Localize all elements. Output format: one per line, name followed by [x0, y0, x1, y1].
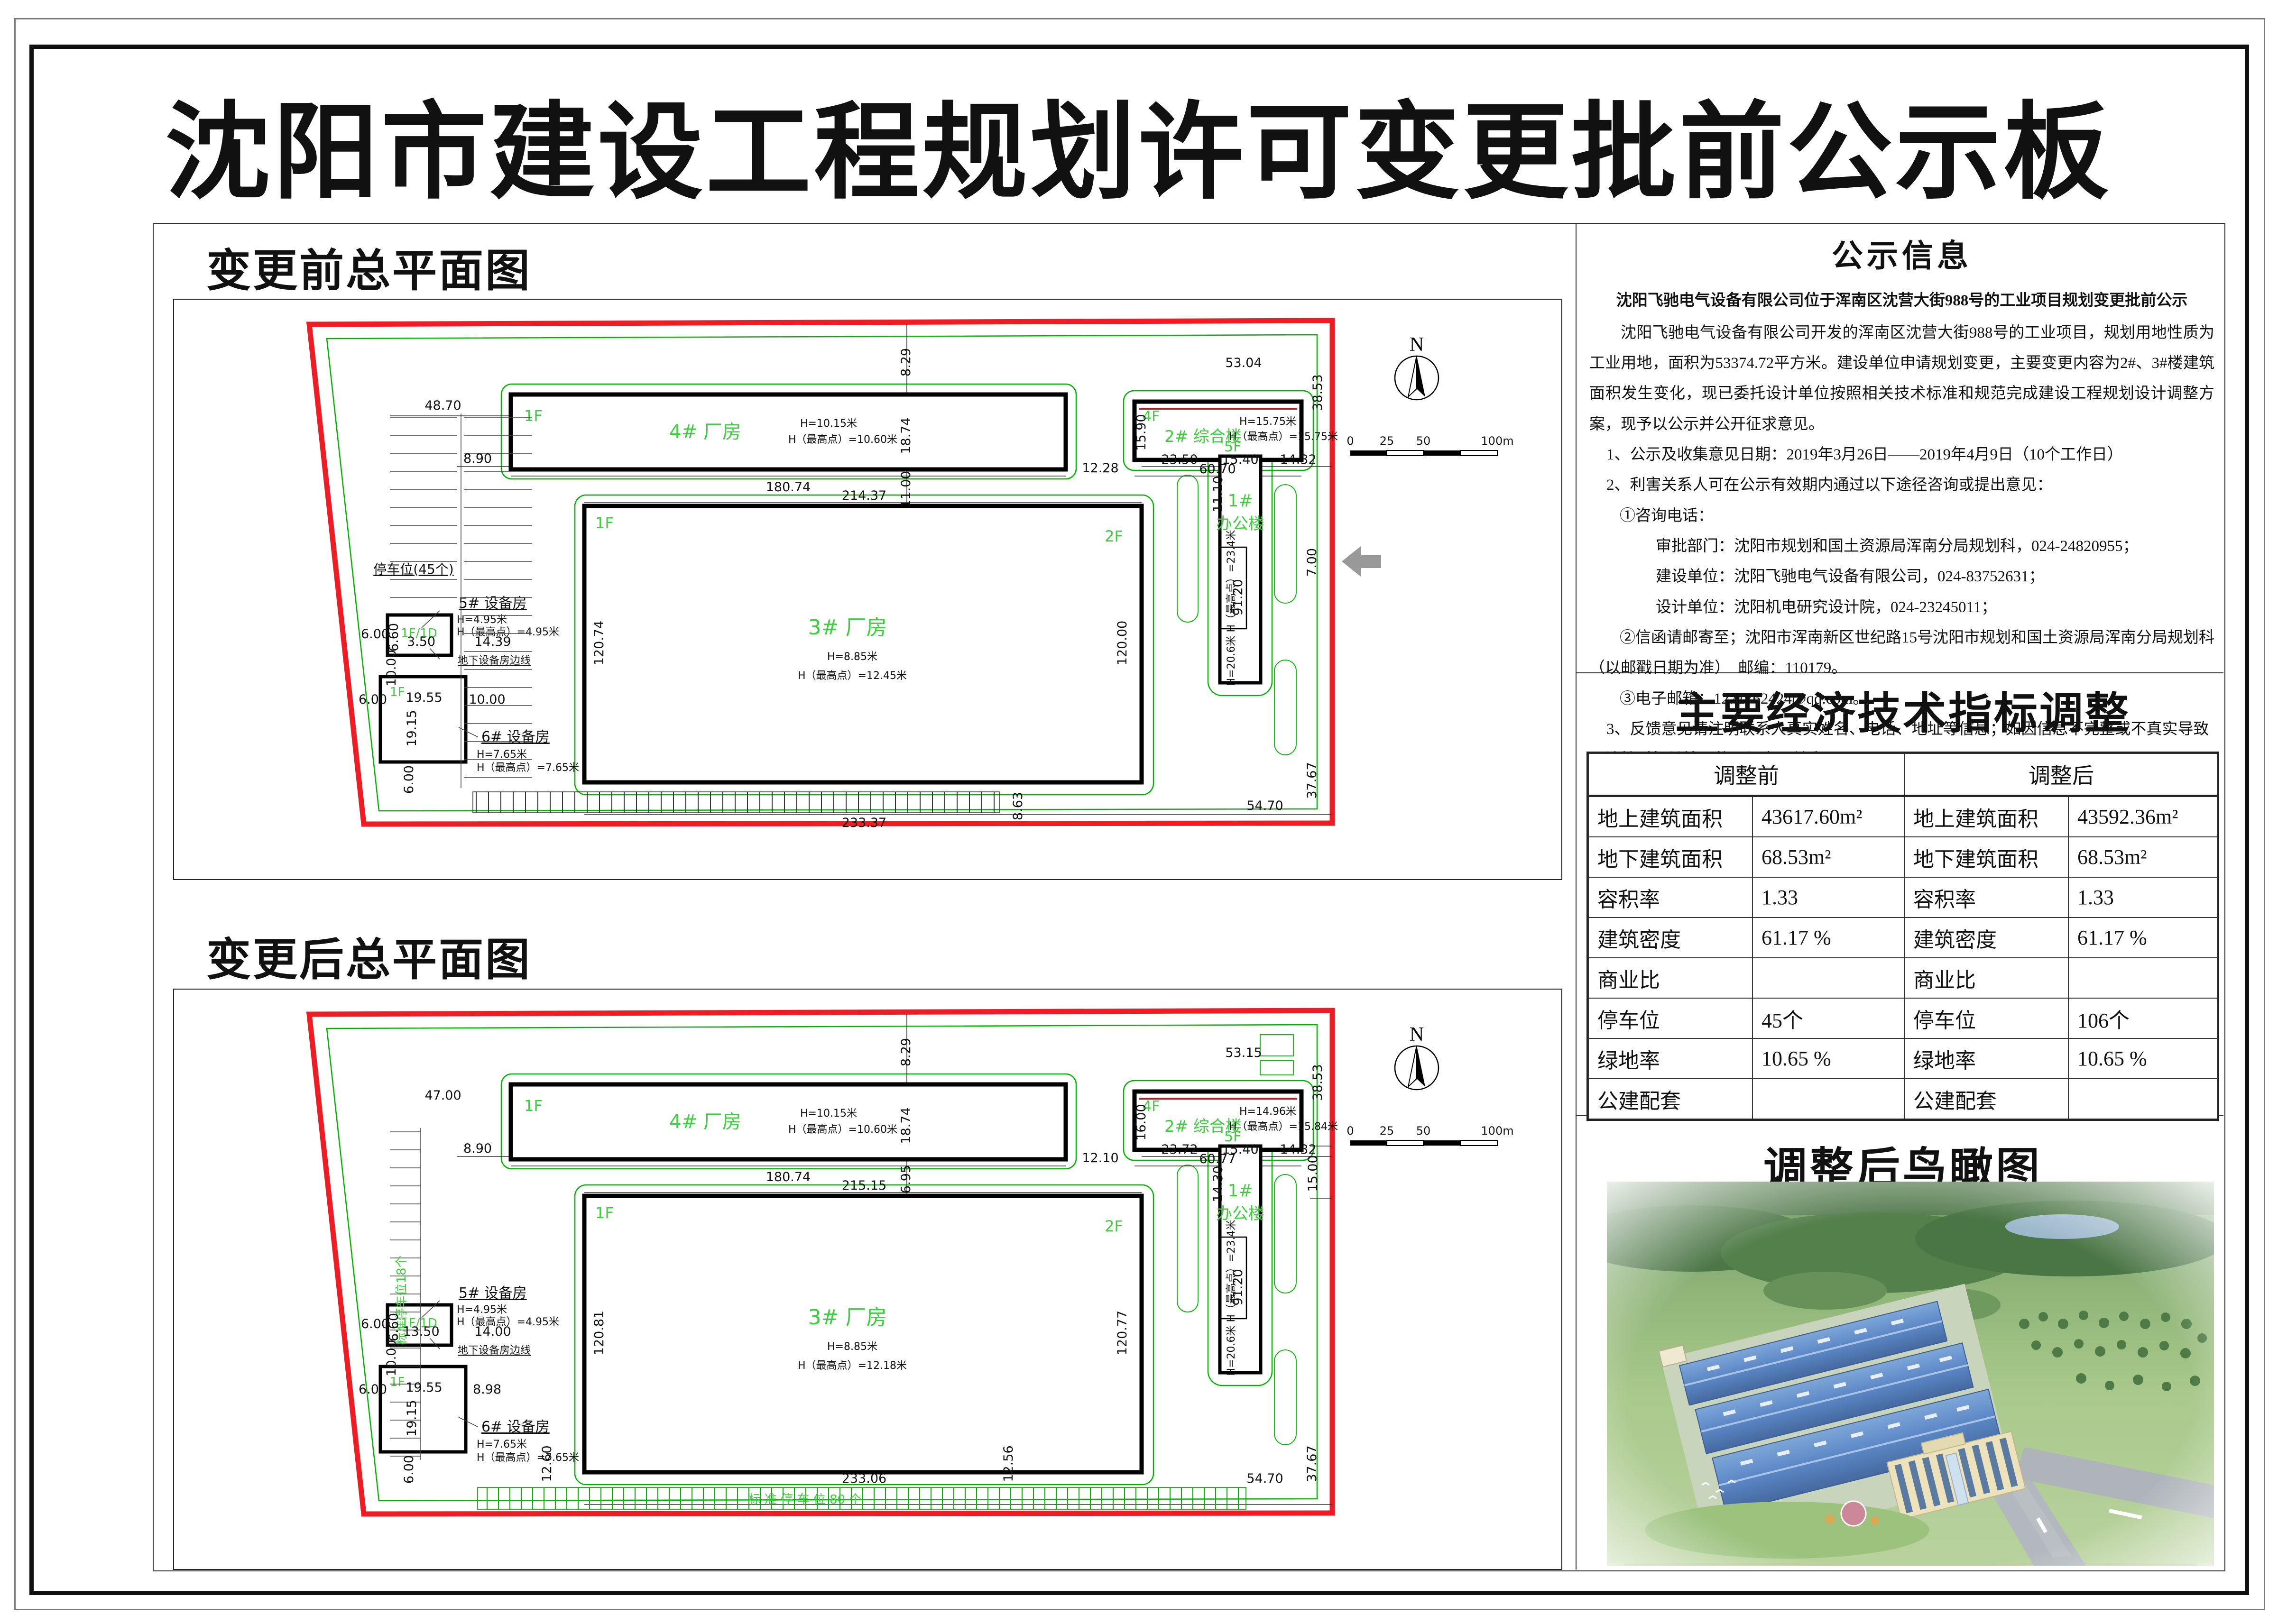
b3-floor-left: 1F	[595, 514, 614, 532]
dim: 8.98	[473, 1382, 501, 1397]
b4-height1: H=10.15米	[800, 418, 857, 430]
dim: 8.29	[899, 1038, 913, 1066]
dim: 6.00	[402, 765, 416, 794]
econ-table: 调整前 调整后 地上建筑面积 43617.60m² 地上建筑面积 43592.3…	[1586, 752, 2219, 1121]
boundary-wall-hatch	[473, 792, 999, 813]
dim: 12.60	[540, 1445, 554, 1482]
dim: 14.32	[1280, 1142, 1316, 1157]
birdseye-svg	[1607, 1182, 2214, 1566]
dim: 6.00	[359, 1382, 387, 1397]
notice-heading: 沈阳飞驰电气设备有限公司位于浑南区沈营大街988号的工业项目规划变更批前公示	[1586, 289, 2217, 313]
scale-25: 25	[1380, 434, 1394, 448]
dim: 8.29	[899, 348, 913, 376]
dim: 14.30	[1211, 1165, 1226, 1202]
econ-cell-label: 地下建筑面积	[1588, 837, 1752, 877]
b3-height1: H=8.85米	[827, 1341, 877, 1353]
dim: 180.74	[766, 480, 811, 495]
dim: 10.00	[384, 650, 399, 686]
b2-height1: H=14.96米	[1239, 1106, 1296, 1118]
north-label: N	[1410, 334, 1424, 356]
dim: 14.00	[474, 1324, 511, 1339]
econ-cell-value: 10.65 %	[1752, 1038, 1904, 1079]
econ-cell-value: 106个	[2068, 998, 2218, 1038]
dim: 37.67	[1305, 762, 1319, 798]
dim: 15.40	[1222, 1142, 1258, 1157]
econ-cell-label: 地上建筑面积	[1904, 797, 2068, 837]
dim: 120.00	[1115, 621, 1130, 665]
b4-floor-label: 1F	[524, 1097, 543, 1115]
underground-line-label: 地下设备房边线	[458, 655, 531, 667]
dim: 14.32	[1280, 452, 1316, 467]
building-3-before: 1F 2F 3# 厂房 H=8.85米 H（最高点）=12.45米	[584, 506, 1142, 782]
econ-header-before: 调整前	[1588, 753, 1904, 797]
b6-height1: H=7.65米	[477, 1439, 527, 1450]
dim: 6.00	[359, 692, 387, 707]
econ-cell-label: 停车位	[1588, 998, 1752, 1038]
b4-name: 4# 厂房	[669, 421, 741, 443]
dim: 16.00	[1134, 1104, 1149, 1140]
dim: 12.56	[1001, 1445, 1016, 1482]
building-4-after: 1F 4# 厂房 H=10.15米 H（最高点）=10.60米	[511, 1084, 1066, 1159]
dim: 8.90	[463, 1141, 492, 1156]
b4-name: 4# 厂房	[669, 1111, 741, 1133]
econ-header-after: 调整后	[1904, 753, 2218, 797]
econ-cell-value: 61.17 %	[2068, 918, 2218, 958]
scale-100: 100m	[1481, 1124, 1513, 1138]
dim: 91.20	[1231, 1269, 1245, 1305]
notice-item: ②信函请邮寄至；沈阳市浑南新区世纪路15号沈阳市规划和国土资源局浑南分局规划科（…	[1589, 623, 2214, 684]
b6-floor-label: 1F	[390, 1375, 405, 1389]
b6-height2: H（最高点）=7.65米	[477, 1452, 579, 1464]
notice-item: 建设单位：沈阳飞驰电气设备有限公司，024-83752631；	[1589, 561, 2214, 592]
econ-cell-label: 建筑密度	[1904, 918, 2068, 958]
econ-cell-value: 68.53m²	[1752, 837, 1904, 877]
b4-floor-label: 1F	[524, 407, 543, 425]
b5-height1: H=4.95米	[457, 1304, 507, 1316]
scale-50: 50	[1416, 1124, 1431, 1138]
econ-cell-value: 43592.36m²	[2068, 797, 2218, 837]
building-5-before: 1F/1D 5# 设备房 H=4.95米 H（最高点）=4.95米 地下设备房边…	[387, 595, 559, 667]
b3-floor-left: 1F	[595, 1204, 614, 1222]
dim: 38.53	[1310, 1064, 1325, 1101]
dim: 180.74	[766, 1170, 811, 1184]
dim: 8.90	[463, 451, 492, 466]
econ-cell-value: 45个	[1752, 998, 1904, 1038]
scale-0: 0	[1347, 434, 1354, 448]
dim: 53.15	[1225, 1046, 1262, 1060]
b1-name: 办公楼	[1216, 514, 1264, 533]
econ-cell-value: 61.17 %	[1752, 918, 1904, 958]
econ-cell-label: 商业比	[1588, 958, 1752, 998]
dim: 3.50	[407, 634, 435, 649]
econ-cell-label: 绿地率	[1904, 1038, 2068, 1079]
dim: 6.60	[387, 623, 401, 651]
dim: 8.63	[1011, 792, 1025, 820]
b5-name: 5# 设备房	[459, 1285, 527, 1302]
north-arrow-before: N	[1395, 334, 1439, 400]
econ-cell-label: 停车位	[1904, 998, 2068, 1038]
dim: 19.55	[406, 1380, 442, 1395]
econ-cell-label: 容积率	[1904, 877, 2068, 918]
b3-height2: H（最高点）=12.18米	[798, 1360, 907, 1372]
notice-item: ①咨询电话：	[1589, 501, 2214, 531]
dim: 10.00	[384, 1340, 399, 1376]
notice-item: 2、利害关系人可在公示有效期内通过以下途径咨询或提出意见：	[1589, 470, 2214, 500]
b2-height1: H=15.75米	[1239, 416, 1296, 428]
dim: 120.77	[1115, 1311, 1130, 1355]
notice-item: 审批部门：沈阳市规划和国土资源局浑南分局规划科，024-24820955；	[1589, 531, 2214, 561]
b1-number: 1#	[1227, 1181, 1253, 1201]
b6-name: 6# 设备房	[481, 1419, 550, 1435]
dim: 48.70	[424, 398, 461, 413]
dim: 10.00	[469, 692, 505, 707]
plan-after-drawing: 1F 4# 厂房 H=10.15米 H（最高点）=10.60米 4F 2# 综合…	[173, 989, 1562, 1570]
column-divider	[1576, 223, 1577, 1569]
dim: 11.10	[1211, 476, 1226, 512]
econ-cell-label: 商业比	[1904, 958, 2068, 998]
econ-cell-label: 容积率	[1588, 877, 1752, 918]
econ-cell-value: 43617.60m²	[1752, 797, 1904, 837]
b6-floor-label: 1F	[390, 685, 405, 699]
b3-name: 3# 厂房	[808, 615, 887, 640]
b3-floor-right: 2F	[1105, 1217, 1123, 1235]
plan-after-title: 变更后总平面图	[206, 924, 532, 988]
parking-bottom-label: 标 准 停 车 位 80 个	[748, 1493, 862, 1507]
econ-cell-value	[1752, 1079, 1904, 1119]
dim: 6.00	[361, 1317, 389, 1331]
dim: 54.70	[1246, 1471, 1283, 1486]
econ-cell-value: 10.65 %	[2068, 1038, 2218, 1079]
dim: 233.37	[842, 816, 886, 830]
b6-height1: H=7.65米	[477, 749, 527, 761]
dim: 19.55	[406, 690, 442, 705]
b6-height2: H（最高点）=7.65米	[477, 762, 579, 774]
dim: 6.60	[387, 1313, 401, 1341]
dim: 23.72	[1161, 1142, 1198, 1157]
entrance-arrow-before	[1342, 546, 1381, 577]
b1-number: 1#	[1227, 491, 1253, 511]
econ-cell-label: 地下建筑面积	[1904, 837, 2068, 877]
building-5-after: 1F/1D 5# 设备房 H=4.95米 H（最高点）=4.95米 地下设备房边…	[387, 1285, 559, 1357]
b3-name: 3# 厂房	[808, 1305, 887, 1330]
dim: 37.67	[1305, 1445, 1319, 1482]
dim: 6.00	[361, 627, 389, 642]
dim: 120.81	[592, 1311, 607, 1355]
dim: 15.00	[1306, 1155, 1320, 1192]
underground-line-label: 地下设备房边线	[458, 1345, 531, 1357]
econ-cell-label: 公建配套	[1588, 1079, 1752, 1119]
notice-item: 1、公示及收集意见日期：2019年3月26日——2019年4月9日（10个工作日…	[1589, 440, 2214, 470]
econ-cell-label: 公建配套	[1904, 1079, 2068, 1119]
econ-cell-label: 地上建筑面积	[1588, 797, 1752, 837]
econ-cell-value: 1.33	[2068, 877, 2218, 918]
notice-title: 公示信息	[1586, 230, 2217, 276]
dim: 233.06	[842, 1471, 886, 1486]
dim: 120.74	[592, 621, 607, 665]
dim: 15.90	[1134, 414, 1149, 450]
scale-100: 100m	[1481, 434, 1513, 448]
dim: 6.00	[402, 1455, 416, 1484]
parking-strip-bottom-after: 标 准 停 车 位 80 个	[478, 1487, 1246, 1509]
dim: 215.15	[842, 1178, 886, 1193]
plan-after-svg: 1F 4# 厂房 H=10.15米 H（最高点）=10.60米 4F 2# 综合…	[174, 990, 1561, 1569]
plan-before-svg: 1F 4# 厂房 H=10.15米 H（最高点）=10.60米 4F 2# 综合…	[174, 300, 1561, 879]
page-title: 沈阳市建设工程规划许可变更批前公示板	[142, 66, 2134, 209]
econ-cell-value	[2068, 958, 2218, 998]
scale-50: 50	[1416, 434, 1431, 448]
b4-height2: H（最高点）=10.60米	[788, 434, 897, 446]
dim: 23.50	[1161, 452, 1198, 467]
notice-section: 公示信息 沈阳飞驰电气设备有限公司位于浑南区沈营大街988号的工业项目规划变更批…	[1586, 228, 2217, 669]
north-arrow-after: N	[1395, 1024, 1439, 1090]
scale-bar-before: 0 25 50 100m	[1347, 434, 1513, 456]
b4-height1: H=10.15米	[800, 1108, 857, 1119]
econ-cell-value	[1752, 958, 1904, 998]
b3-height2: H（最高点）=12.45米	[798, 670, 907, 682]
dim: 18.74	[899, 417, 913, 454]
dim: 19.15	[405, 1400, 419, 1436]
econ-cell-value: 68.53m²	[2068, 837, 2218, 877]
b2-height2: H（最高点）=15.84米	[1229, 1121, 1338, 1133]
dim: 47.00	[424, 1088, 461, 1103]
b1-name: 办公楼	[1216, 1204, 1264, 1223]
dim: 11.00	[899, 471, 913, 507]
dim: 38.53	[1310, 374, 1325, 411]
dim: 7.00	[1305, 548, 1319, 577]
dim: 13.50	[403, 1324, 439, 1339]
birdseye-render-image	[1607, 1182, 2214, 1566]
econ-title: 主要经济技术指标调整	[1586, 678, 2219, 741]
b2-height2: H（最高点）=15.75米	[1229, 431, 1338, 443]
dim: 12.10	[1082, 1151, 1118, 1165]
building-4-before: 1F 4# 厂房 H=10.15米 H（最高点）=10.60米	[511, 395, 1066, 469]
dim: 15.40	[1222, 452, 1258, 467]
dim: 12.28	[1082, 461, 1118, 476]
econ-cell-value: 1.33	[1752, 877, 1904, 918]
render-fog-vignette	[1607, 1182, 2214, 1566]
scale-25: 25	[1380, 1124, 1394, 1138]
econ-cell-label: 绿地率	[1588, 1038, 1752, 1079]
b3-floor-right: 2F	[1105, 527, 1123, 545]
building-3-after: 1F 2F 3# 厂房 H=8.85米 H（最高点）=12.18米	[584, 1196, 1142, 1472]
b3-height1: H=8.85米	[827, 651, 877, 663]
dim: 54.70	[1246, 798, 1283, 813]
econ-cell-value	[2068, 1079, 2218, 1119]
scale-bar-after: 0 25 50 100m	[1347, 1124, 1513, 1146]
notice-item: 设计单位：沈阳机电研究设计院，024-23245011；	[1589, 592, 2214, 623]
econ-section: 主要经济技术指标调整 调整前 调整后 地上建筑面积 43617.60m² 地上建…	[1586, 678, 2219, 1121]
plan-before-drawing: 1F 4# 厂房 H=10.15米 H（最高点）=10.60米 4F 2# 综合…	[173, 299, 1562, 880]
dim: 19.15	[405, 710, 419, 746]
notice-body: 沈阳飞驰电气设备有限公司开发的浑南区沈营大街988号的工业项目，规划用地性质为工…	[1586, 318, 2217, 440]
dim: 214.37	[842, 488, 886, 503]
dim: 18.74	[899, 1107, 913, 1144]
b4-height2: H（最高点）=10.60米	[788, 1124, 897, 1136]
dim: 14.39	[474, 634, 511, 649]
north-label: N	[1410, 1024, 1424, 1046]
econ-cell-label: 建筑密度	[1588, 918, 1752, 958]
b6-name: 6# 设备房	[481, 729, 550, 745]
dim: 6.95	[899, 1165, 913, 1193]
parking-count-label: 停车位(45个)	[373, 561, 453, 577]
scale-0: 0	[1347, 1124, 1354, 1138]
dim: 91.20	[1231, 579, 1245, 615]
dim: 53.04	[1225, 356, 1262, 370]
plan-before-title: 变更前总平面图	[206, 235, 532, 299]
